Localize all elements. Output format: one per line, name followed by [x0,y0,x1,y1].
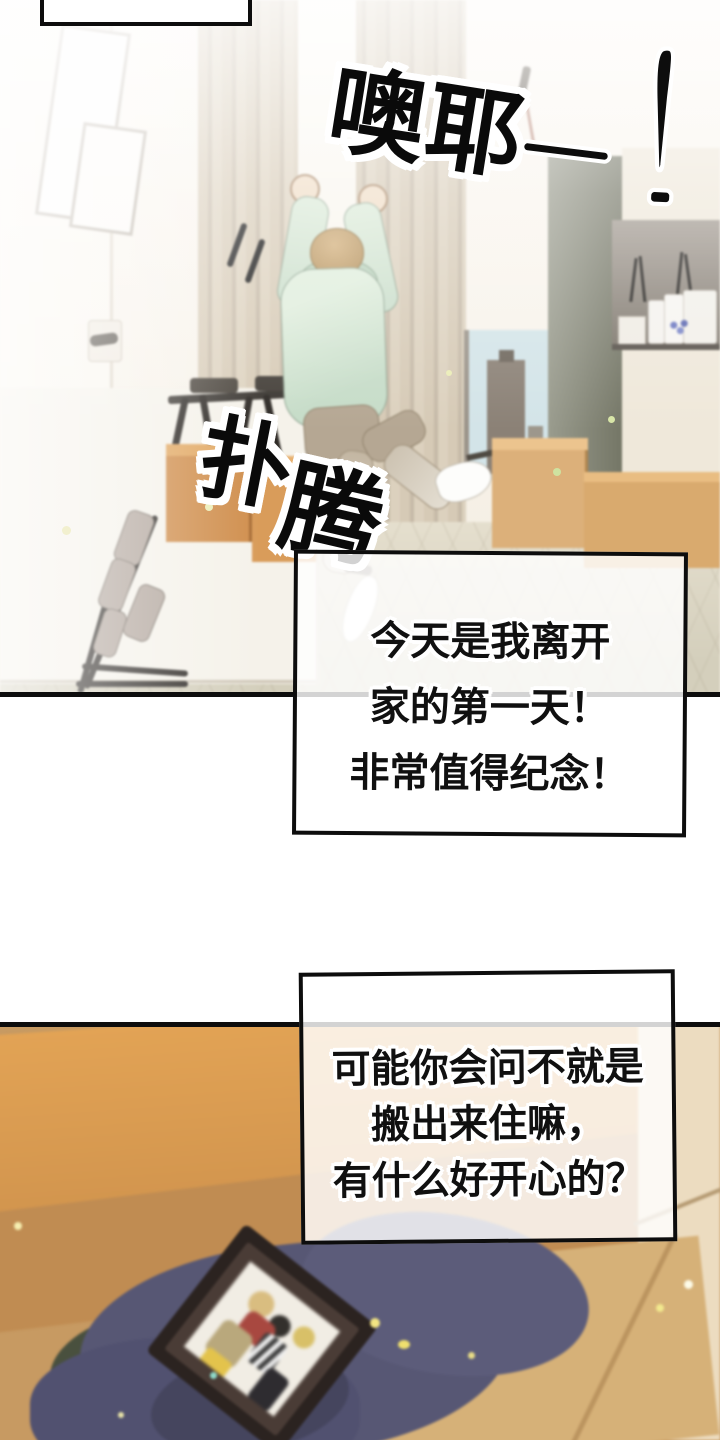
narration-box-2-line-1: 可能你会问不就是 [331,1040,644,1099]
narration-box-1-line-3: 非常值得纪念！ [349,740,629,808]
cardboard-box-3 [492,438,588,548]
family-photo [184,1261,340,1416]
narration-box-2: 可能你会问不就是 搬出来住嘛， 有什么好开心的？ [299,969,678,1245]
narration-box-1-line-1: 今天是我离开 [370,608,610,676]
previous-narration-box [40,0,252,26]
light-wash-left [0,0,260,697]
narration-box-1: 今天是我离开 家的第一天！ 非常值得纪念！ [292,550,688,838]
photo-person-blond-child [288,1322,319,1353]
narration-box-2-line-3: 有什么好开心的？ [332,1152,645,1211]
narration-box-1-line-2: 家的第一天！ [370,674,610,742]
comic-page: 噢耶 扑 腾 [0,0,720,1440]
narration-box-2-line-2: 搬出来住嘛， [371,1096,606,1154]
sfx-exclamation-icon [635,41,688,223]
